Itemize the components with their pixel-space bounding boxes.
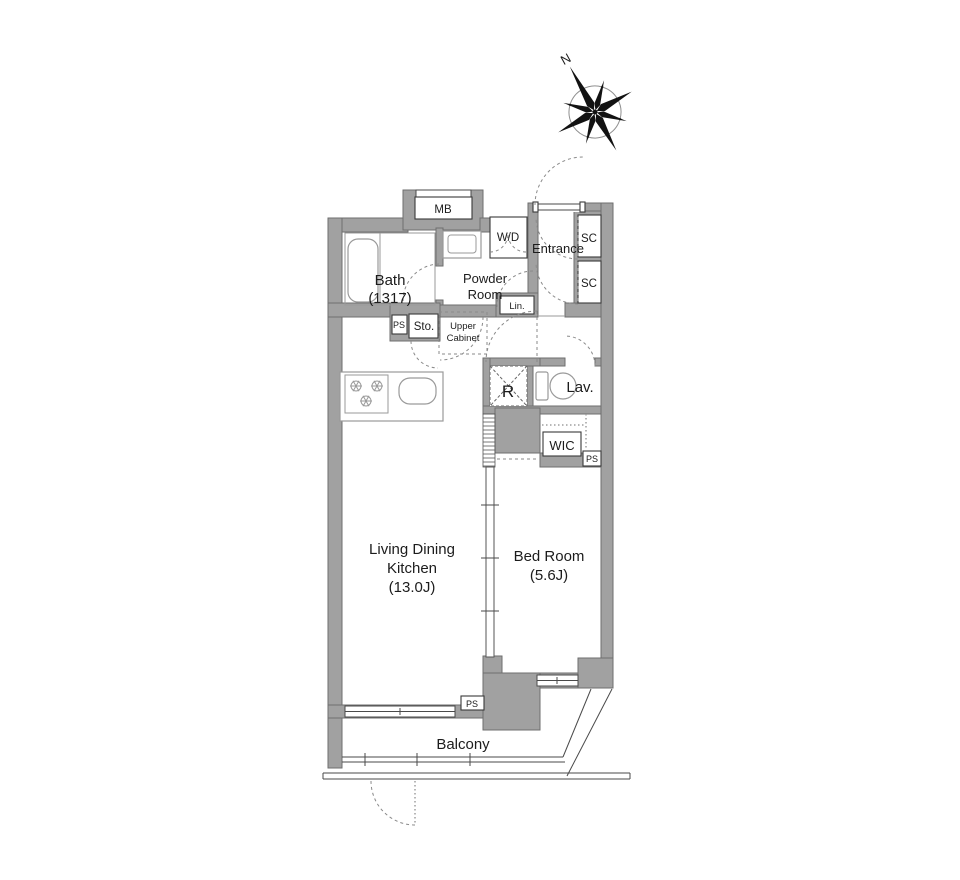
meter-box-flap xyxy=(416,190,471,197)
wall-segment xyxy=(578,658,613,688)
wall-segment xyxy=(595,358,601,366)
balcony-diagonal-edge xyxy=(567,689,612,776)
shoe-closet-door-arc xyxy=(536,262,578,304)
compass-north-label: N xyxy=(558,50,573,68)
shoe-closet-label-bottom: SC xyxy=(581,278,597,290)
wall-segment xyxy=(328,218,342,768)
balcony-label: Balcony xyxy=(436,736,490,753)
shoe-closet-label-top: SC xyxy=(581,233,597,245)
wall-segment xyxy=(436,228,443,266)
wall-segment xyxy=(483,673,540,730)
lavatory-label: Lav. xyxy=(566,379,593,396)
ldk-label: Living Dining xyxy=(369,541,455,558)
pipe-space-kitchen-label: PS xyxy=(393,320,405,330)
compass-rose: N xyxy=(525,32,653,171)
upper-cabinet-label: Upper xyxy=(450,321,476,332)
storage-door-arc xyxy=(411,341,438,368)
toilet-tank xyxy=(536,372,548,400)
wall-segment xyxy=(495,408,540,453)
bath-size-label: (1317) xyxy=(368,290,411,307)
wall-segment xyxy=(601,203,613,688)
wall-segment xyxy=(540,358,565,366)
washer-dryer-label: W/D xyxy=(497,232,519,244)
hatched-shaft xyxy=(483,414,495,467)
balcony-diagonal-edge xyxy=(563,689,591,757)
ldk-size-label: (13.0J) xyxy=(389,579,436,596)
wic-label: WIC xyxy=(549,438,574,453)
balcony-partition-door-arc xyxy=(371,781,415,825)
ldk-label2: Kitchen xyxy=(387,560,437,577)
floorplan-canvas: N MB Bath (1317) W/D Powder Room Entranc… xyxy=(0,0,960,880)
kitchen-sink xyxy=(399,378,436,404)
entrance-door-arc xyxy=(535,157,583,205)
door-jamb xyxy=(580,202,585,212)
bath-label: Bath xyxy=(375,272,406,289)
wall-segment xyxy=(527,366,533,406)
bedroom-label: Bed Room xyxy=(514,548,585,565)
bedroom-size-label: (5.6J) xyxy=(530,567,568,584)
entrance-label: Entrance xyxy=(532,241,584,256)
refrigerator-label: R xyxy=(502,382,514,401)
lavatory-door-arc xyxy=(565,336,595,366)
compass-hub xyxy=(592,109,599,116)
wall-segment xyxy=(342,218,408,232)
powder-room-label2: Room xyxy=(468,287,503,302)
wall-segment xyxy=(483,358,540,366)
pipe-space-balcony-label: PS xyxy=(466,699,478,709)
floorplan-svg: N MB Bath (1317) W/D Powder Room Entranc… xyxy=(0,0,960,880)
upper-cabinet-label2: Cabinet xyxy=(447,333,480,344)
wall-segment xyxy=(565,303,601,317)
corridor-door-arc xyxy=(486,311,537,362)
wall-segment xyxy=(483,656,502,675)
meter-box-label: MB xyxy=(434,204,452,216)
storage-label: Sto. xyxy=(414,321,434,333)
powder-room-label: Powder xyxy=(463,271,508,286)
pipe-space-bedroom-label: PS xyxy=(586,454,598,464)
linen-label: Lin. xyxy=(509,301,524,312)
sliding-partition xyxy=(486,467,494,657)
